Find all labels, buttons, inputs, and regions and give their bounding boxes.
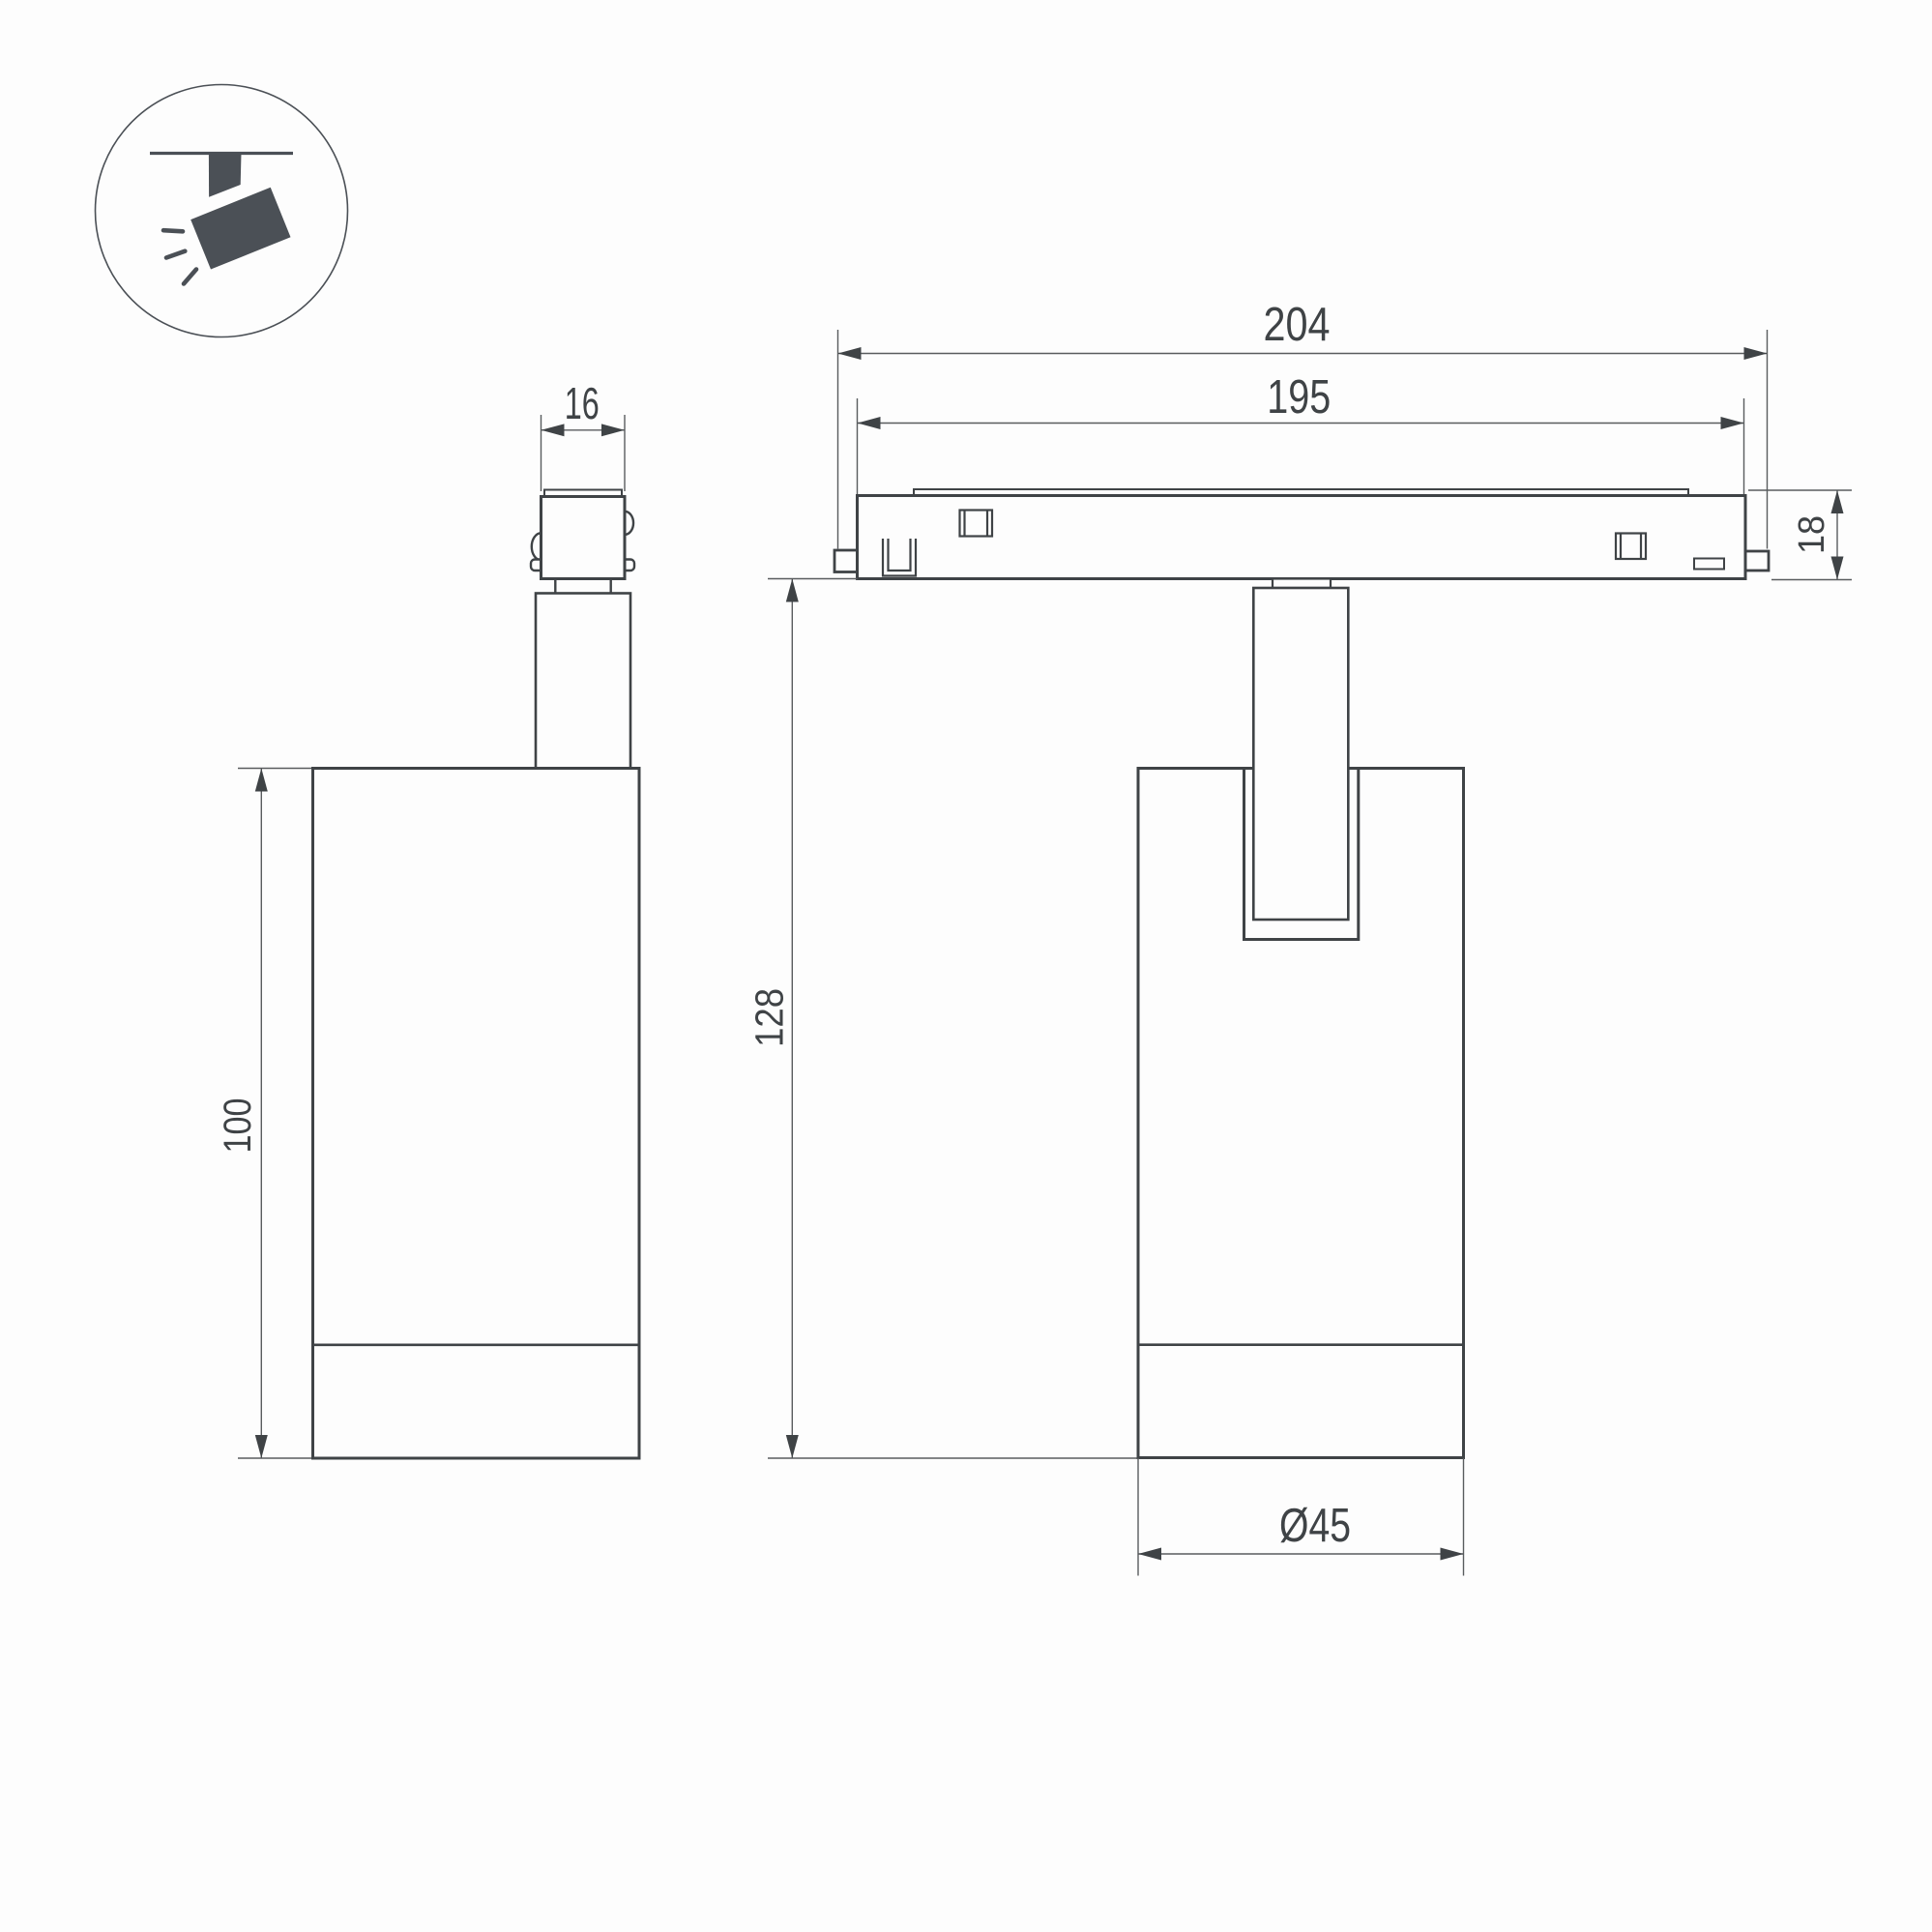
- svg-text:16: 16: [565, 378, 600, 428]
- svg-text:Ø45: Ø45: [1279, 1500, 1351, 1552]
- svg-text:100: 100: [217, 1098, 259, 1154]
- svg-text:204: 204: [1264, 299, 1331, 351]
- svg-text:128: 128: [747, 988, 792, 1047]
- svg-text:18: 18: [1792, 515, 1832, 554]
- svg-text:195: 195: [1267, 371, 1331, 424]
